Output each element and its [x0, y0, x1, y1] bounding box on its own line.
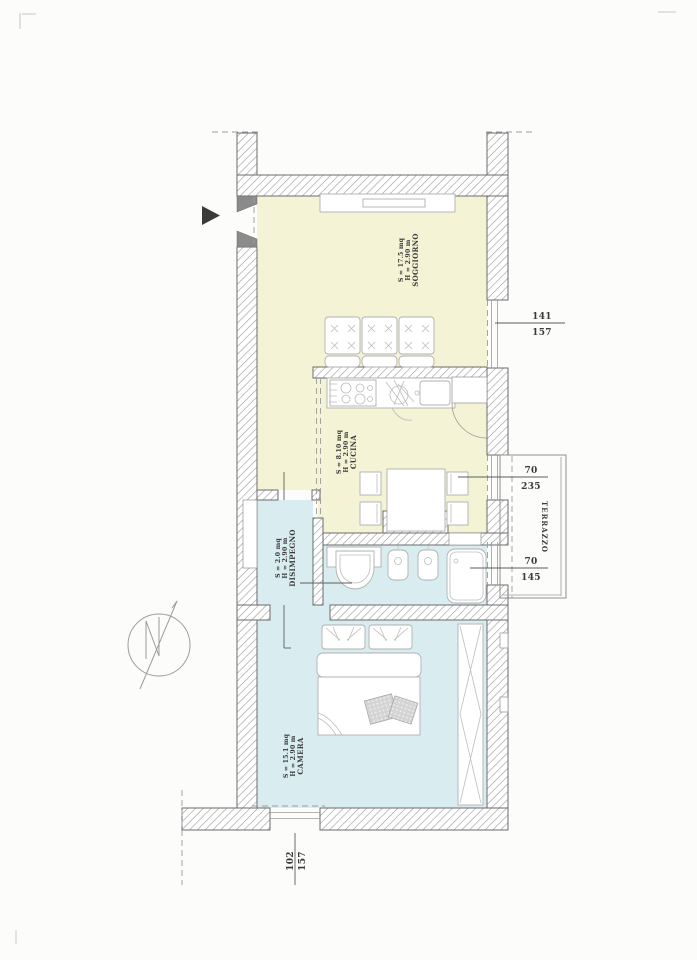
room-area: S = 15.1 mq: [283, 733, 290, 778]
north-compass-icon: [128, 601, 190, 689]
room-name: SOGGIORNO: [411, 233, 420, 287]
bed: [317, 625, 421, 735]
floor-plan-page: 141 157 70 235 70 145 102 157 SOGGIORNO …: [0, 0, 697, 960]
terrace-window-glazing: [492, 542, 498, 585]
label-soggiorno: SOGGIORNO H = 2.90 m S = 17.5 mq: [398, 233, 420, 287]
dim-soggiorno-window: 141 157: [495, 312, 565, 338]
camera-window: [270, 813, 320, 819]
label-terrazzo: TERRAZZO: [540, 501, 549, 553]
room-area: S = 17.5 mq: [398, 237, 405, 282]
dim-den: 145: [521, 573, 541, 583]
doorway-floor: [270, 605, 330, 620]
dim-den: 157: [532, 328, 552, 338]
label-camera: CAMERA H = 2.90 m S = 15.1 mq: [283, 733, 305, 778]
dim-num: 141: [532, 312, 552, 322]
dim-den: 235: [521, 482, 541, 492]
dim-num: 102: [286, 851, 296, 871]
pillow: [369, 625, 412, 649]
dim-num: 70: [524, 557, 537, 567]
room-area: S = 2.0 mq: [275, 538, 282, 578]
wardrobe: [458, 624, 483, 805]
room-area: S = 8.10 mq: [336, 429, 343, 474]
room-height: H = 2.90 m: [282, 537, 289, 578]
sofa: [325, 317, 434, 367]
room-name: CAMERA: [296, 737, 305, 774]
room-name: CUCINA: [349, 435, 358, 469]
room-height: H = 2.90 m: [405, 239, 412, 280]
room-height: H = 2.90 m: [343, 431, 350, 472]
pillow: [322, 625, 365, 649]
room-height: H = 2.90 m: [290, 735, 297, 776]
entrance-arrow-icon: [202, 206, 220, 225]
corridor-floor: [257, 367, 318, 490]
label-cucina: CUCINA H = 2.90 m S = 8.10 mq: [336, 429, 358, 474]
stove-icon: [329, 380, 376, 406]
radiator: [320, 194, 455, 212]
dim-camera-window: 102 157: [286, 833, 308, 885]
shower-tray: [447, 549, 486, 603]
room-name: DISIMPEGNO: [288, 529, 297, 587]
terrace-door-glazing: [492, 455, 498, 500]
floor-plan-drawing: 141 157 70 235 70 145 102 157 SOGGIORNO …: [0, 0, 697, 960]
dim-num: 70: [524, 466, 537, 476]
soggiorno-window: [492, 300, 498, 368]
dim-den: 157: [298, 851, 308, 871]
room-name: TERRAZZO: [540, 501, 549, 553]
